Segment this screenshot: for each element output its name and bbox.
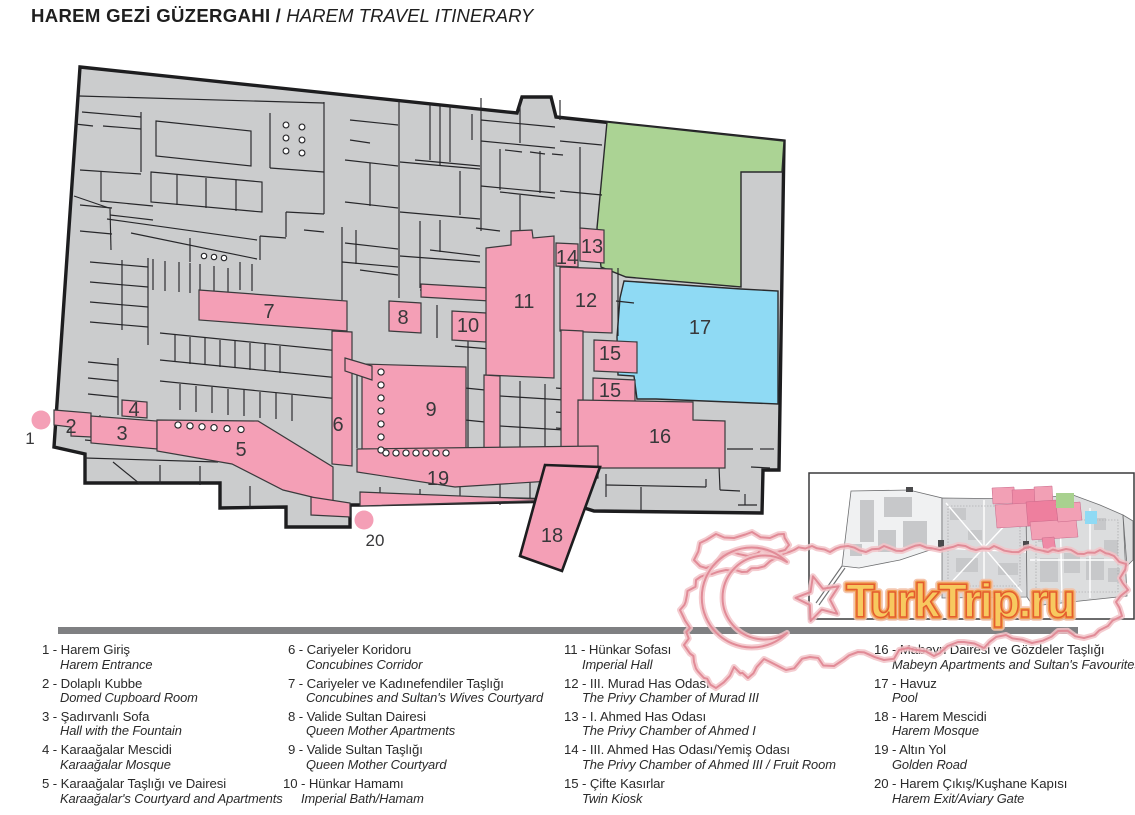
svg-text:TurkTrip.ru: TurkTrip.ru (846, 574, 1074, 627)
